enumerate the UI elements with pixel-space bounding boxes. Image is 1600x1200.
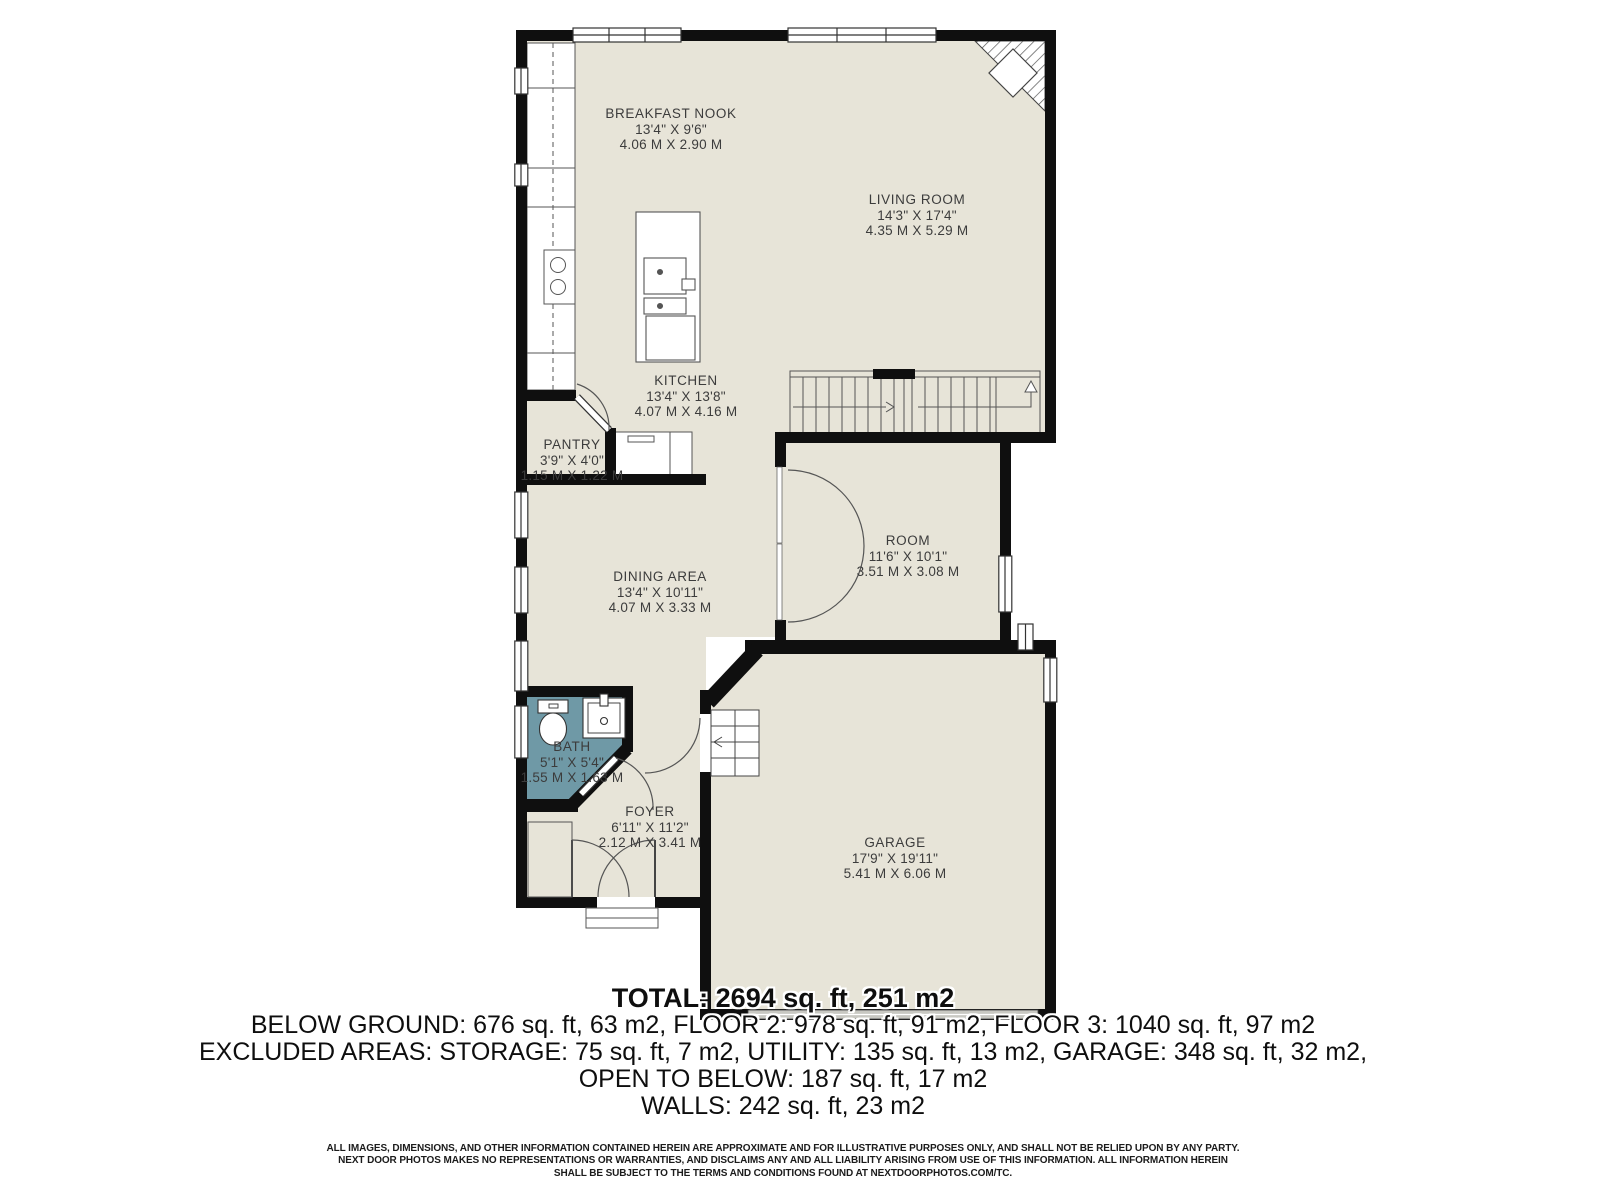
room-label-foyer: FOYER 6'11" X 11'2" 2.12 M X 3.41 M — [599, 804, 702, 851]
room-label-kitchen: KITCHEN 13'4" X 13'8" 4.07 M X 4.16 M — [635, 373, 738, 420]
room-label-dining-area: DINING AREA 13'4" X 10'11" 4.07 M X 3.33… — [609, 569, 712, 616]
room-name: LIVING ROOM — [866, 192, 969, 208]
room-dims-m: 2.12 M X 3.41 M — [599, 835, 702, 851]
room-name: BREAKFAST NOOK — [605, 106, 736, 122]
summary-line: WALLS: 242 sq. ft, 23 m2 — [0, 1093, 1566, 1120]
faucet — [682, 279, 695, 290]
disclaimer: ALL IMAGES, DIMENSIONS, AND OTHER INFORM… — [0, 1143, 1566, 1180]
room-name: GARAGE — [844, 835, 947, 851]
room-name: ROOM — [857, 533, 960, 549]
porch-step — [586, 908, 658, 928]
pantry-counter — [612, 432, 692, 478]
room-dims-ft: 5'1" X 5'4" — [521, 755, 624, 771]
room-dims-m: 4.35 M X 5.29 M — [866, 223, 969, 239]
room-dims-ft: 13'4" X 9'6" — [605, 122, 736, 138]
disclaimer-line: ALL IMAGES, DIMENSIONS, AND OTHER INFORM… — [0, 1143, 1566, 1155]
room-dims-ft: 14'3" X 17'4" — [866, 208, 969, 224]
toilet-tank — [538, 700, 568, 713]
room-dims-m: 1.55 M X 1.63 M — [521, 770, 624, 786]
sink-faucet — [600, 694, 608, 706]
room-dims-ft: 3'9" X 4'0" — [521, 453, 624, 469]
room-dims-ft: 13'4" X 13'8" — [635, 389, 738, 405]
area-summary: TOTAL: 2694 sq. ft, 251 m2 BELOW GROUND:… — [0, 984, 1566, 1120]
summary-line: BELOW GROUND: 676 sq. ft, 63 m2, FLOOR 2… — [0, 1012, 1566, 1039]
room-dims-ft: 11'6" X 10'1" — [857, 549, 960, 565]
room-dims-m: 3.51 M X 3.08 M — [857, 564, 960, 580]
room-name: DINING AREA — [609, 569, 712, 585]
room-dims-m: 5.41 M X 6.06 M — [844, 866, 947, 882]
room-label-breakfast-nook: BREAKFAST NOOK 13'4" X 9'6" 4.06 M X 2.9… — [605, 106, 736, 153]
disclaimer-line: SHALL BE SUBJECT TO THE TERMS AND CONDIT… — [0, 1168, 1566, 1180]
kitchen-counter — [527, 43, 575, 390]
room-dims-ft: 17'9" X 19'11" — [844, 851, 947, 867]
summary-line: EXCLUDED AREAS: STORAGE: 75 sq. ft, 7 m2… — [0, 1039, 1566, 1066]
room-name: KITCHEN — [635, 373, 738, 389]
room-label-living-room: LIVING ROOM 14'3" X 17'4" 4.35 M X 5.29 … — [866, 192, 969, 239]
floorplan-page: BREAKFAST NOOK 13'4" X 9'6" 4.06 M X 2.9… — [0, 0, 1600, 1200]
room-dims-ft: 13'4" X 10'11" — [609, 585, 712, 601]
room-name: FOYER — [599, 804, 702, 820]
summary-line: OPEN TO BELOW: 187 sq. ft, 17 m2 — [0, 1066, 1566, 1093]
disclaimer-line: NEXT DOOR PHOTOS MAKES NO REPRESENTATION… — [0, 1155, 1566, 1167]
room-dims-m: 1.15 M X 1.22 M — [521, 468, 624, 484]
total-area: TOTAL: 2694 sq. ft, 251 m2 — [0, 984, 1566, 1012]
room-name: PANTRY — [521, 437, 624, 453]
room-name: BATH — [521, 739, 624, 755]
entry-steps — [711, 710, 759, 776]
room-dims-m: 4.07 M X 4.16 M — [635, 404, 738, 420]
room-label-garage: GARAGE 17'9" X 19'11" 5.41 M X 6.06 M — [844, 835, 947, 882]
room-dims-m: 4.06 M X 2.90 M — [605, 137, 736, 153]
room-label-pantry: PANTRY 3'9" X 4'0" 1.15 M X 1.22 M — [521, 437, 624, 484]
room-label-room: ROOM 11'6" X 10'1" 3.51 M X 3.08 M — [857, 533, 960, 580]
room-dims-m: 4.07 M X 3.33 M — [609, 600, 712, 616]
room-label-bath: BATH 5'1" X 5'4" 1.55 M X 1.63 M — [521, 739, 624, 786]
room-dims-ft: 6'11" X 11'2" — [599, 820, 702, 836]
kitchen-island — [636, 212, 700, 362]
